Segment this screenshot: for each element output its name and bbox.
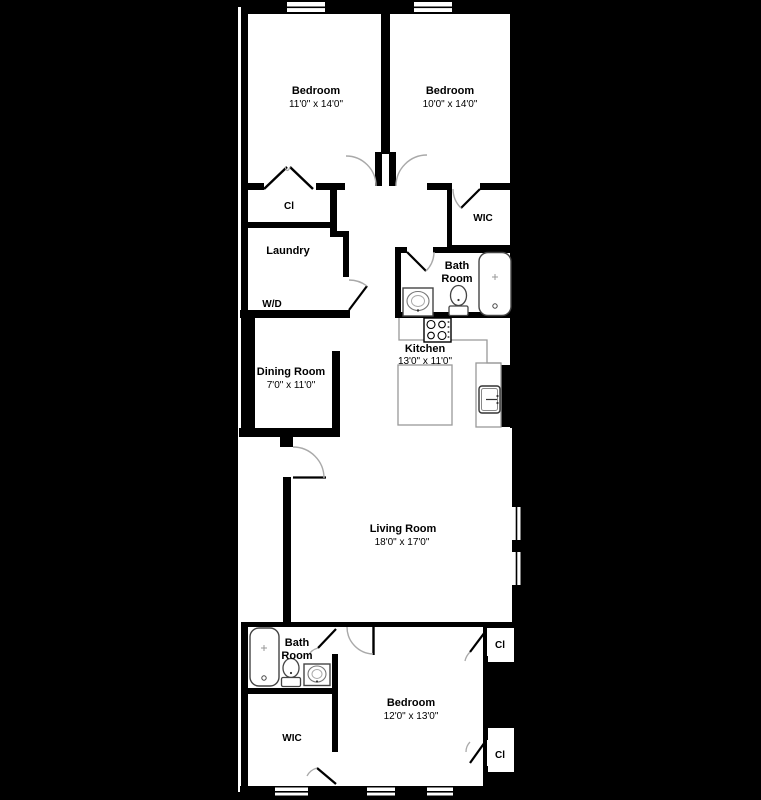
wall-entry-stub xyxy=(280,437,293,447)
wall-wic-left xyxy=(447,189,452,246)
wall-bedrooms-bottom-2 xyxy=(316,183,345,190)
wall-dining-bottom xyxy=(239,428,340,437)
window-mullion xyxy=(427,791,453,793)
toilet-top xyxy=(449,286,468,316)
window-bottom-2 xyxy=(367,788,395,796)
closet-br-top-label: Cl xyxy=(495,640,505,651)
wall-kitchen-shaft xyxy=(501,365,510,427)
window-living-right-2 xyxy=(512,552,521,585)
kitchen-name: Kitchen xyxy=(405,343,446,355)
bath-bottom-label-2: Room xyxy=(281,650,312,662)
bath-top-label-1: Bath xyxy=(445,260,470,272)
toilet-tank xyxy=(282,678,301,687)
wall-laundry-bottom xyxy=(240,310,350,318)
floor-plan: Bedroom 11'0" x 14'0" Bedroom 10'0" x 14… xyxy=(0,0,761,800)
window-mullion xyxy=(414,7,452,9)
left-boundary-line xyxy=(238,7,241,792)
wic-top-label: WIC xyxy=(473,213,492,224)
wall-bedroomb-right-2 xyxy=(483,766,488,786)
vanity-sink-top xyxy=(403,288,433,316)
wall-bathb-bottom xyxy=(248,688,338,694)
wall-lower-top-2 xyxy=(373,622,488,627)
bathtub-top xyxy=(479,253,511,316)
bedroom-top-right-dims: 10'0" x 14'0" xyxy=(423,99,478,110)
window-mullion xyxy=(516,507,518,540)
closet-top-label: Cl xyxy=(284,201,294,212)
wall-bathb-right xyxy=(332,654,338,688)
toilet-flush xyxy=(457,299,459,301)
wic-bottom-label: WIC xyxy=(282,733,301,744)
window-mullion xyxy=(275,791,308,793)
window-mullion xyxy=(287,7,325,9)
window-top-right xyxy=(414,2,452,12)
wall-bedrooms-bottom-4 xyxy=(480,183,510,190)
stove xyxy=(424,318,451,342)
bathtub xyxy=(479,253,511,316)
floor-plan-canvas: Bedroom 11'0" x 14'0" Bedroom 10'0" x 14… xyxy=(0,0,761,800)
wall-lower-top-1 xyxy=(248,622,347,627)
wall-bedroomb-right-1 xyxy=(483,656,488,740)
wall-bath-left xyxy=(395,247,401,318)
wall-jamb-right xyxy=(389,152,396,186)
window-top-left xyxy=(287,2,325,12)
wall-dining-right xyxy=(332,351,340,437)
stove-knob xyxy=(448,321,450,323)
bathtub xyxy=(250,628,279,686)
toilet-tank xyxy=(449,306,468,316)
bedroom-top-left-dims: 11'0" x 14'0" xyxy=(289,99,344,110)
wall-bedrooms-bottom-1 xyxy=(248,183,264,190)
vanity-tap xyxy=(417,309,419,311)
bedroom-top-left-name: Bedroom xyxy=(292,85,341,97)
toilet-flush xyxy=(290,672,292,674)
toilet-bottom xyxy=(282,659,301,687)
dining-name: Dining Room xyxy=(257,366,326,378)
stove-knob xyxy=(448,326,450,328)
living-dims: 18'0" x 17'0" xyxy=(375,537,430,548)
wall-living-left xyxy=(283,477,291,622)
wall-closet-right xyxy=(330,189,337,237)
vanity-tap xyxy=(316,680,318,682)
dining-dims: 7'0" x 11'0" xyxy=(267,380,316,391)
wall-closet-bottom xyxy=(248,222,330,228)
kitchen-dims: 13'0" x 11'0" xyxy=(398,356,453,367)
sink-tap xyxy=(496,402,498,404)
window-bottom-1 xyxy=(275,788,308,796)
kitchen-living-opening xyxy=(340,428,512,437)
wall-wicb-right xyxy=(332,694,338,752)
bathtub-bottom xyxy=(250,628,279,686)
bath-top-label-2: Room xyxy=(441,273,472,285)
bedroom-bottom-dims: 12'0" x 13'0" xyxy=(384,711,439,722)
wall-bedrooms-bottom-3 xyxy=(427,183,452,190)
window-living-right-1 xyxy=(512,507,521,540)
bedroom-bottom-name: Bedroom xyxy=(387,697,436,709)
sink-tap xyxy=(496,395,498,397)
wall-laundry-jog xyxy=(330,231,349,237)
toilet-bowl xyxy=(451,286,467,306)
stove-knob xyxy=(448,331,450,333)
wall-dining-left xyxy=(248,318,255,428)
kitchen-sink xyxy=(479,386,500,413)
closet-br-bottom-label: Cl xyxy=(495,750,505,761)
laundry-label: Laundry xyxy=(266,245,310,257)
vanity-sink-bottom xyxy=(304,664,330,686)
window-mullion xyxy=(367,791,395,793)
window-bottom-3 xyxy=(427,788,453,796)
bath-bottom-label-1: Bath xyxy=(285,637,310,649)
stove-knob xyxy=(448,336,450,338)
wall-laundry-right xyxy=(343,237,349,277)
bedroom-top-right-name: Bedroom xyxy=(426,85,475,97)
window-mullion xyxy=(516,552,518,585)
washer-dryer-label: W/D xyxy=(262,299,281,310)
wall-bedroom-divider xyxy=(381,14,390,154)
living-name: Living Room xyxy=(370,523,437,535)
